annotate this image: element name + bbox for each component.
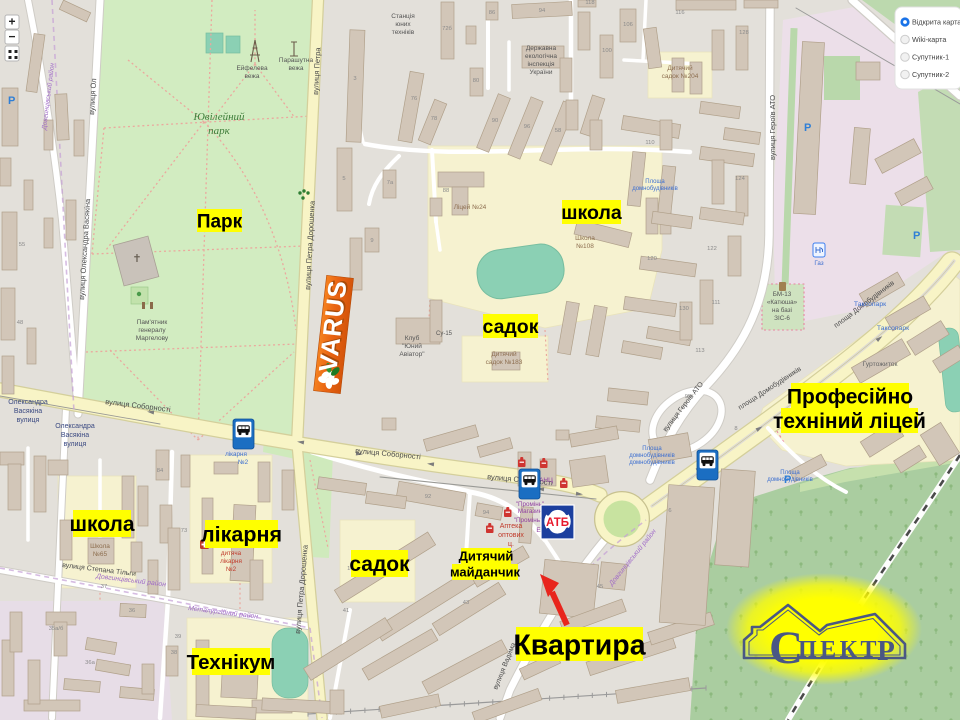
svg-text:90: 90 xyxy=(492,118,498,124)
svg-text:+: + xyxy=(8,15,15,29)
svg-text:122: 122 xyxy=(707,246,717,252)
svg-text:41: 41 xyxy=(343,608,349,614)
svg-text:вулиця: вулиця xyxy=(17,417,40,424)
svg-text:"Промінь": "Промінь" xyxy=(516,500,545,508)
svg-text:Дитячий: Дитячий xyxy=(491,350,517,358)
svg-text:садок: садок xyxy=(349,553,410,576)
svg-text:Маргелову: Маргелову xyxy=(136,335,169,342)
svg-text:Таксопарк: Таксопарк xyxy=(854,301,886,308)
svg-text:Державна: Державна xyxy=(526,45,557,52)
svg-text:84: 84 xyxy=(157,468,164,474)
svg-text:Відкрита карта: Відкрита карта xyxy=(912,18,960,27)
svg-text:94: 94 xyxy=(539,8,546,14)
svg-text:Станція: Станція xyxy=(391,12,415,20)
svg-text:35а/б: 35а/б xyxy=(49,626,64,632)
svg-text:домнобудівників: домнобудівників xyxy=(629,460,675,466)
svg-text:парк: парк xyxy=(208,125,231,137)
svg-text:92: 92 xyxy=(425,494,431,500)
svg-text:Дитячий: Дитячий xyxy=(459,549,514,564)
svg-text:Парашутна: Парашутна xyxy=(279,57,314,64)
svg-text:P: P xyxy=(784,474,791,486)
svg-text:Таксопарк: Таксопарк xyxy=(877,325,909,332)
svg-text:ПЕКТ: ПЕКТ xyxy=(798,637,880,663)
svg-text:39: 39 xyxy=(175,634,181,640)
svg-text:Квартира: Квартира xyxy=(513,629,646,661)
svg-text:8: 8 xyxy=(734,426,737,432)
svg-text:техніний ліцей: техніний ліцей xyxy=(773,410,926,433)
svg-text:Авіатор": Авіатор" xyxy=(399,350,425,358)
svg-text:АТБ: АТБ xyxy=(546,517,569,529)
svg-text:5: 5 xyxy=(342,176,345,182)
svg-text:Аптека: Аптека xyxy=(500,523,523,530)
svg-text:Олександра: Олександра xyxy=(55,423,95,430)
svg-text:Дитячий: Дитячий xyxy=(667,64,693,72)
svg-text:78: 78 xyxy=(431,116,437,122)
svg-text:58: 58 xyxy=(555,128,561,134)
svg-text:Wiki-карта: Wiki-карта xyxy=(912,35,946,44)
svg-text:домнобудівників: домнобудівників xyxy=(629,453,675,459)
svg-text:Газ: Газ xyxy=(814,260,823,267)
svg-text:генералу: генералу xyxy=(138,327,166,334)
svg-text:76: 76 xyxy=(411,96,417,102)
svg-text:45: 45 xyxy=(597,584,603,590)
svg-text:110: 110 xyxy=(645,140,654,146)
svg-text:38: 38 xyxy=(171,650,177,656)
svg-text:оптових: оптових xyxy=(498,532,524,539)
svg-text:№2: №2 xyxy=(238,459,249,466)
svg-text:Клуб: Клуб xyxy=(405,334,420,342)
svg-text:Ювілейний: Ювілейний xyxy=(192,111,245,123)
svg-text:124: 124 xyxy=(735,176,745,182)
svg-text:94: 94 xyxy=(483,510,490,516)
svg-text:Су-15: Су-15 xyxy=(436,331,453,337)
svg-text:95: 95 xyxy=(685,394,691,400)
svg-text:118: 118 xyxy=(585,0,594,6)
svg-text:43: 43 xyxy=(463,600,469,606)
svg-text:майданчик: майданчик xyxy=(450,565,521,580)
svg-text:«Катюша»: «Катюша» xyxy=(767,299,798,306)
svg-text:"Юний: "Юний xyxy=(402,342,422,350)
svg-text:№65: №65 xyxy=(93,551,108,558)
svg-text:−: − xyxy=(8,30,15,44)
svg-text:72б: 72б xyxy=(442,26,452,32)
svg-text:37: 37 xyxy=(101,584,107,590)
svg-text:техніків: техніків xyxy=(392,28,415,36)
svg-text:Парк: Парк xyxy=(197,211,243,232)
svg-text:екологічна: екологічна xyxy=(525,52,557,60)
svg-text:9: 9 xyxy=(370,238,373,244)
svg-text:Супутник-2: Супутник-2 xyxy=(912,70,949,79)
svg-text:P: P xyxy=(804,122,811,134)
svg-text:Технікум: Технікум xyxy=(187,651,276,674)
svg-text:інспекція: інспекція xyxy=(528,60,555,68)
svg-text:106: 106 xyxy=(623,22,633,28)
svg-text:вулиця: вулиця xyxy=(64,441,87,448)
svg-text:"Промінь": "Промінь" xyxy=(514,516,543,524)
svg-text:48: 48 xyxy=(17,320,23,326)
svg-text:86: 86 xyxy=(489,10,495,16)
svg-text:вежа: вежа xyxy=(245,73,260,80)
svg-text:88: 88 xyxy=(443,188,449,194)
svg-text:128: 128 xyxy=(739,30,749,36)
svg-text:школа: школа xyxy=(69,513,134,536)
svg-text:школа: школа xyxy=(561,202,622,224)
svg-text:Васякіна: Васякіна xyxy=(14,407,42,415)
svg-text:120: 120 xyxy=(647,256,657,262)
svg-text:дитяча: дитяча xyxy=(221,550,242,557)
svg-text:садок №204: садок №204 xyxy=(662,73,699,80)
svg-text:130: 130 xyxy=(679,306,689,312)
svg-text:Площа: Площа xyxy=(645,179,665,185)
svg-text:3: 3 xyxy=(353,76,356,82)
svg-text:ЗІС-6: ЗІС-6 xyxy=(774,315,790,322)
svg-text:✝: ✝ xyxy=(132,253,141,265)
svg-text:P: P xyxy=(8,95,15,107)
svg-text:73: 73 xyxy=(181,528,187,534)
svg-text:36: 36 xyxy=(129,608,135,614)
svg-text:лікарня: лікарня xyxy=(201,523,282,547)
svg-text:вулиця Героїв АТО: вулиця Героїв АТО xyxy=(768,95,777,160)
svg-text:Гуртожиток: Гуртожиток xyxy=(862,361,897,368)
svg-text:113: 113 xyxy=(695,348,704,354)
svg-text:БМ-13: БМ-13 xyxy=(773,291,792,298)
svg-text:Школа: Школа xyxy=(575,235,595,242)
svg-text:Ейфелева: Ейфелева xyxy=(236,64,268,72)
svg-text:111: 111 xyxy=(712,300,721,306)
svg-text:№2: №2 xyxy=(226,566,237,573)
svg-text:вежа: вежа xyxy=(289,65,304,72)
svg-text:лікарня: лікарня xyxy=(225,450,247,458)
svg-text:садок №183: садок №183 xyxy=(486,359,523,366)
svg-text:лікарня: лікарня xyxy=(220,557,242,565)
svg-text:6: 6 xyxy=(668,508,671,514)
svg-text:P: P xyxy=(913,230,920,242)
svg-text:Супутник-1: Супутник-1 xyxy=(912,53,949,62)
svg-text:Школа: Школа xyxy=(90,543,110,550)
svg-text:7а: 7а xyxy=(387,180,394,186)
svg-text:Пам'ятник: Пам'ятник xyxy=(137,319,168,326)
svg-text:ц.: ц. xyxy=(508,541,514,548)
svg-text:Р: Р xyxy=(877,635,895,667)
svg-text:80: 80 xyxy=(473,78,479,84)
svg-text:100: 100 xyxy=(602,48,612,54)
svg-text:домнобудівників: домнобудівників xyxy=(632,186,678,192)
svg-text:Професійно: Професійно xyxy=(787,386,913,409)
svg-text:116: 116 xyxy=(675,10,684,16)
svg-text:АНЦ: АНЦ xyxy=(539,477,553,484)
svg-text:Олександра: Олександра xyxy=(8,399,48,406)
svg-text:Магазин: Магазин xyxy=(518,508,543,515)
svg-text:Васякіна: Васякіна xyxy=(61,431,89,439)
svg-text:Ліцей №24: Ліцей №24 xyxy=(454,203,487,211)
svg-text:96: 96 xyxy=(524,124,530,130)
svg-text:юних: юних xyxy=(395,21,411,28)
svg-text:на базі: на базі xyxy=(772,306,792,314)
svg-text:55: 55 xyxy=(19,242,25,248)
svg-text:садок: садок xyxy=(483,316,539,338)
svg-text:№108: №108 xyxy=(576,243,594,250)
svg-text:Площа: Площа xyxy=(642,446,662,452)
svg-text:36а: 36а xyxy=(85,660,95,666)
svg-text:України: України xyxy=(530,69,553,76)
